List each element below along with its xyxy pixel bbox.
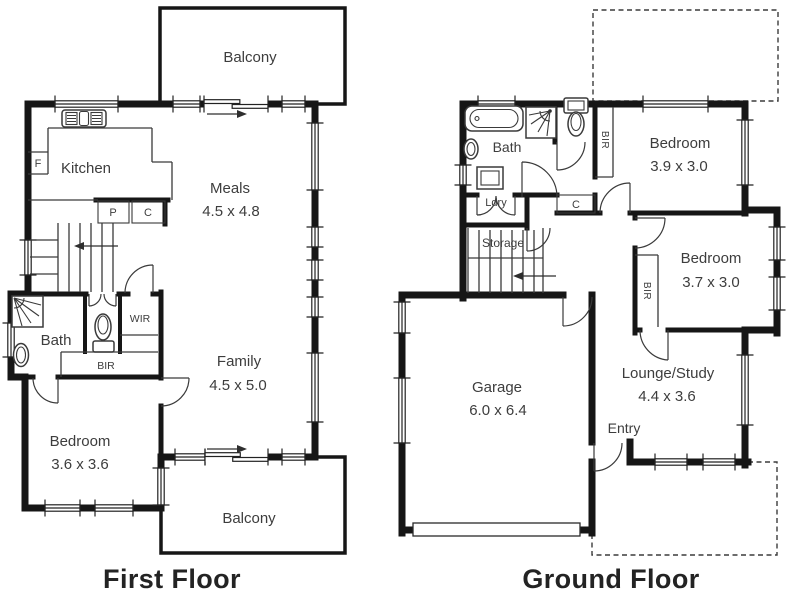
shower-ground	[526, 107, 556, 138]
ground-floor-plan: Bath Ldry Storage C BIR BIR Bedroom 3.9 …	[394, 10, 786, 594]
lounge-label: Lounge/Study	[622, 365, 715, 382]
window	[394, 378, 411, 443]
bath-label-ground: Bath	[493, 139, 522, 155]
lounge-door	[640, 330, 668, 360]
cupboard-label-ground: C	[572, 199, 580, 211]
first-floor-title: First Floor	[103, 564, 241, 594]
family-dims: 4.5 x 5.0	[209, 377, 267, 394]
dashed-outline-top	[593, 10, 778, 101]
bath-label: Bath	[41, 332, 72, 349]
meals-label: Meals	[210, 180, 250, 197]
window	[737, 120, 754, 185]
family-label: Family	[217, 353, 262, 370]
shower	[12, 296, 43, 327]
window	[282, 449, 305, 466]
kitchen-sink	[62, 110, 106, 127]
dashed-outline-bottom	[592, 462, 777, 555]
basin-ground	[464, 139, 478, 159]
window	[307, 297, 324, 317]
storage-label: Storage	[482, 236, 524, 250]
bath-door	[522, 162, 557, 197]
entry-door	[594, 443, 622, 471]
sliding-door	[205, 449, 268, 466]
cupboard-label: C	[144, 207, 152, 219]
bir2-label: BIR	[641, 282, 652, 300]
first-floor-interior-walls	[11, 200, 168, 457]
window	[307, 123, 324, 190]
garage-dims: 6.0 x 6.4	[469, 402, 527, 419]
wc-door-ground	[557, 142, 585, 170]
wir-label: WIR	[130, 313, 151, 325]
stairs	[30, 223, 113, 292]
bir1-label: BIR	[599, 131, 610, 149]
garage-internal-door	[563, 297, 592, 326]
toilet-ground	[564, 98, 588, 136]
stairs-arrowhead	[74, 242, 84, 250]
slider-arrowhead-bottom	[237, 445, 247, 453]
bedroom-door	[33, 378, 58, 403]
window	[307, 353, 324, 422]
sliding-door	[204, 96, 268, 113]
window	[173, 96, 200, 113]
window	[455, 165, 472, 185]
window	[769, 277, 786, 310]
entry-label: Entry	[608, 420, 641, 436]
window	[643, 96, 708, 113]
window	[703, 454, 735, 471]
storage-door	[527, 228, 550, 251]
meals-dims: 4.5 x 4.8	[202, 203, 260, 220]
bedroom-dims: 3.6 x 3.6	[51, 456, 109, 473]
bir-label: BIR	[97, 360, 115, 372]
first-floor-plan: Balcony Kitchen F Meals 4.5 x 4.8 P C Ba…	[3, 8, 346, 594]
balcony-top-label: Balcony	[223, 49, 277, 66]
bedroom2-dims: 3.7 x 3.0	[682, 274, 740, 291]
window	[737, 355, 754, 425]
floor-plan-page: Balcony Kitchen F Meals 4.5 x 4.8 P C Ba…	[0, 0, 796, 600]
slider-arrowhead-top	[237, 110, 247, 118]
garage-door	[413, 523, 580, 536]
ground-floor-title: Ground Floor	[522, 564, 699, 594]
balcony-bottom-outline	[161, 457, 345, 553]
toilet	[93, 314, 114, 352]
window	[45, 500, 80, 517]
laundry-label: Ldry	[485, 197, 507, 209]
bedroom1-door	[600, 183, 630, 213]
fridge-label: F	[35, 158, 42, 170]
bedroom1-dims: 3.9 x 3.0	[650, 158, 708, 175]
bedroom1-label: Bedroom	[650, 135, 711, 152]
bedroom-label: Bedroom	[50, 433, 111, 450]
window	[307, 260, 324, 280]
window	[307, 227, 324, 247]
window	[769, 227, 786, 260]
floor-plan-svg: Balcony Kitchen F Meals 4.5 x 4.8 P C Ba…	[0, 0, 796, 600]
window	[282, 96, 305, 113]
hall-door	[125, 265, 153, 293]
pantry-label: P	[109, 207, 116, 219]
garage-label: Garage	[472, 379, 522, 396]
wc-door	[89, 294, 116, 306]
family-door	[161, 378, 189, 406]
window	[153, 468, 170, 505]
bedroom2-label: Bedroom	[681, 250, 742, 267]
window	[95, 500, 133, 517]
window	[394, 302, 411, 333]
kitchen-label: Kitchen	[61, 160, 111, 177]
lounge-dims: 4.4 x 3.6	[638, 388, 696, 405]
bedroom2-door	[635, 218, 665, 248]
window	[175, 449, 205, 466]
stairs-arrowhead-ground	[513, 272, 523, 280]
window	[655, 454, 687, 471]
basin	[14, 344, 29, 367]
laundry-trough	[477, 167, 503, 189]
bathtub	[465, 106, 523, 131]
balcony-bottom-label: Balcony	[222, 510, 276, 527]
